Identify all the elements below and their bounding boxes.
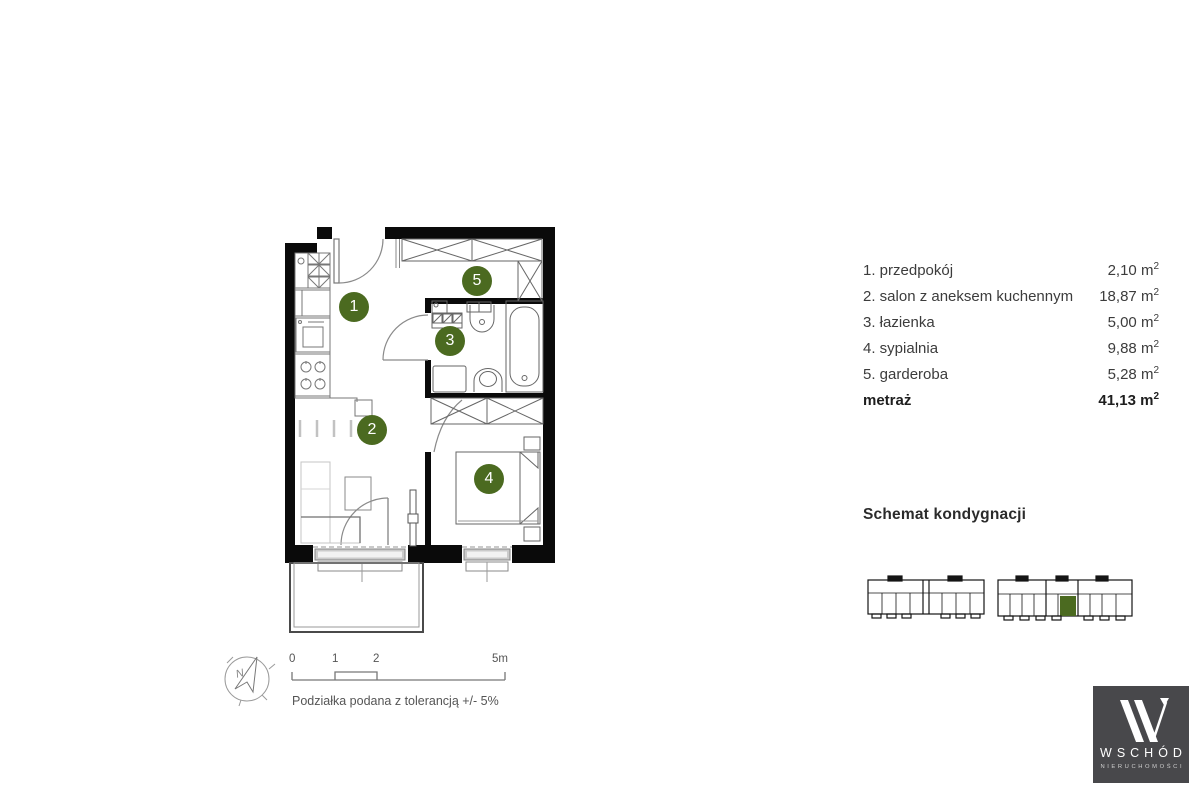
building-outline-left bbox=[866, 574, 986, 622]
room-label: 5. garderoba bbox=[863, 366, 948, 383]
room-label: 2. salon z aneksem kuchennym bbox=[863, 288, 1073, 305]
room-number-badge-3: 3 bbox=[435, 326, 465, 356]
building-outline-right bbox=[996, 572, 1136, 624]
dining-chairs bbox=[300, 420, 351, 437]
logo-brand-text: WSCHÓD bbox=[1093, 746, 1189, 760]
legend-total-row: metraż 41,13 m2 bbox=[863, 387, 1159, 413]
logo-subtitle-text: NIERUCHOMOŚCI bbox=[1093, 764, 1189, 770]
room-area: 9,88 m2 bbox=[1108, 340, 1159, 357]
room-number-badge-5: 5 bbox=[462, 266, 492, 296]
legend-row: 4. sypialnia 9,88 m2 bbox=[863, 335, 1159, 361]
scale-tolerance-note: Podziałka podana z tolerancją +/- 5% bbox=[292, 694, 499, 708]
room-label: 4. sypialnia bbox=[863, 340, 938, 357]
company-logo: WSCHÓD NIERUCHOMOŚCI bbox=[1093, 686, 1189, 783]
total-label: metraż bbox=[863, 392, 911, 409]
room-area: 5,00 m2 bbox=[1108, 314, 1159, 331]
tv-panel bbox=[408, 490, 418, 546]
room-number-badge-2: 2 bbox=[357, 415, 387, 445]
legend-row: 3. łazienka 5,00 m2 bbox=[863, 309, 1159, 335]
room-area: 5,28 m2 bbox=[1108, 366, 1159, 383]
room-number-badge-1: 1 bbox=[339, 292, 369, 322]
total-area: 41,13 m2 bbox=[1098, 392, 1159, 409]
legend-row: 5. garderoba 5,28 m2 bbox=[863, 361, 1159, 387]
room-legend: 1. przedpokój 2,10 m2 2. salon z aneksem… bbox=[863, 257, 1159, 413]
scale-tick-0: 0 bbox=[289, 653, 295, 665]
highlighted-unit bbox=[1060, 596, 1076, 616]
room-area: 2,10 m2 bbox=[1108, 262, 1159, 279]
scale-bar bbox=[292, 672, 505, 680]
room-number-badge-4: 4 bbox=[474, 464, 504, 494]
scale-tick-5m: 5m bbox=[492, 653, 508, 665]
floorplan-page: 1 2 3 4 5 1. przedpokój 2,10 m2 2. salon… bbox=[0, 0, 1203, 797]
floor-scheme-title: Schemat kondygnacji bbox=[863, 506, 1026, 524]
room-area: 18,87 m2 bbox=[1099, 288, 1159, 305]
room-label: 3. łazienka bbox=[863, 314, 935, 331]
balcony bbox=[290, 563, 423, 632]
scale-tick-1: 1 bbox=[332, 653, 338, 665]
room-label: 1. przedpokój bbox=[863, 262, 953, 279]
compass-rose bbox=[225, 657, 275, 706]
legend-row: 1. przedpokój 2,10 m2 bbox=[863, 257, 1159, 283]
sofa bbox=[301, 462, 371, 543]
legend-row: 2. salon z aneksem kuchennym 18,87 m2 bbox=[863, 283, 1159, 309]
scale-tick-2: 2 bbox=[373, 653, 379, 665]
